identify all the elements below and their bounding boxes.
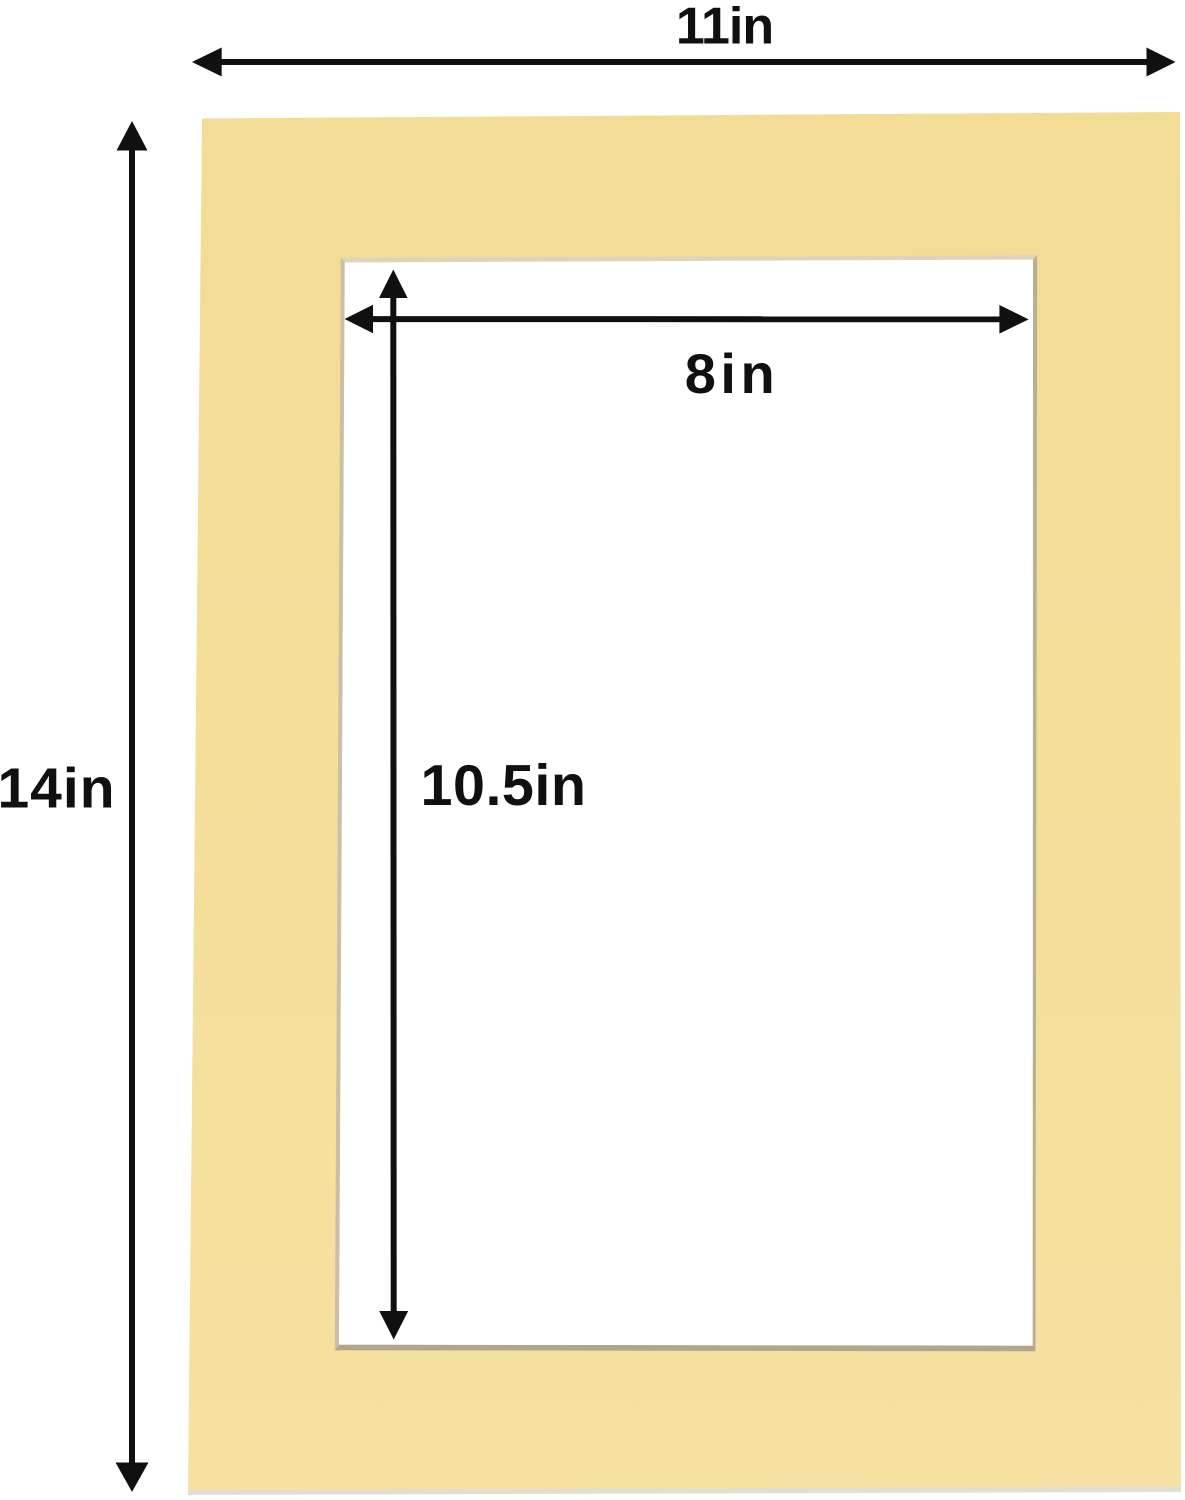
svg-text:11in: 11in xyxy=(676,0,773,56)
svg-text:14in: 14in xyxy=(0,757,116,821)
svg-text:8in: 8in xyxy=(685,342,779,405)
svg-text:10.5in: 10.5in xyxy=(420,754,586,818)
